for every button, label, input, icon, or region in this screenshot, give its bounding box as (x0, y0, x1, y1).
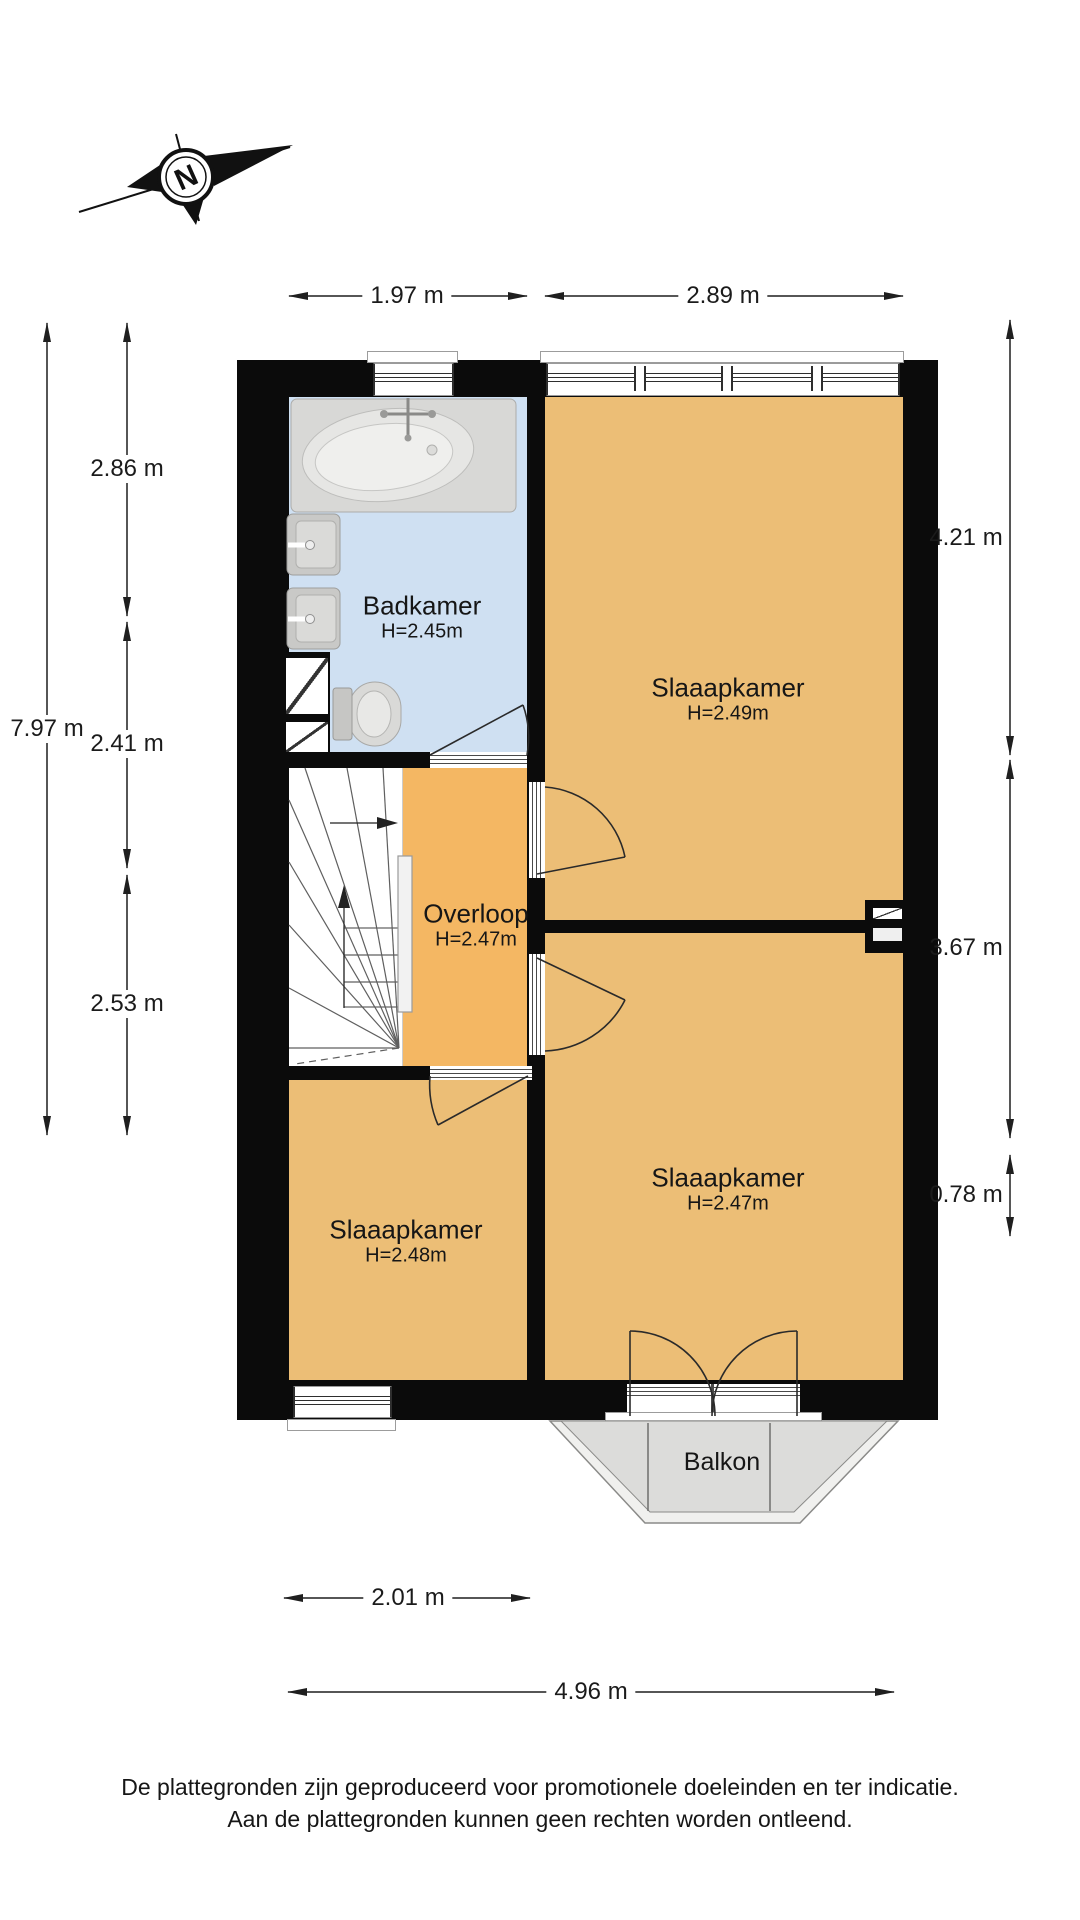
bedroom-top-floor (545, 397, 903, 920)
room-height: H=2.47m (423, 928, 529, 950)
wall-right (903, 360, 938, 1420)
dim-left-2: 2.41 m (82, 730, 171, 758)
room-label-slaapkamer-rechts: Slaaapkamer H=2.47m (651, 1163, 804, 1215)
bedroom-left-door-frame (430, 1066, 532, 1080)
window-sill (367, 351, 458, 363)
room-height: H=2.45m (363, 620, 482, 642)
compass-n-label: N (170, 158, 203, 197)
bedroom-left-window (293, 1386, 392, 1418)
balcony-threshold (605, 1412, 822, 1423)
dim-bottom-2: 4.96 m (546, 1678, 635, 1706)
room-label-overloop: Overloop H=2.47m (423, 899, 529, 951)
bathroom-window (373, 363, 454, 396)
window-sill (540, 351, 904, 363)
window-mullion (634, 366, 646, 391)
footer-disclaimer-line1: De plattegronden zijn geproduceerd voor … (0, 1774, 1080, 1801)
footer-disclaimer-line2: Aan de plattegronden kunnen geen rechten… (0, 1806, 1080, 1833)
dim-top-right: 2.89 m (678, 282, 767, 310)
room-label-slaapkamer-boven: Slaaapkamer H=2.49m (651, 673, 804, 725)
dim-bottom-1: 2.01 m (363, 1584, 452, 1612)
bedroom-right-door-frame (529, 954, 545, 1055)
window-mullion (811, 366, 823, 391)
wall-left (237, 360, 289, 1420)
room-label-badkamer: Badkamer H=2.45m (363, 591, 482, 643)
wall-bedroom-divider (545, 920, 865, 933)
dim-right-1: 4.21 m (929, 524, 1002, 552)
dim-right-3: 0.78 m (929, 1181, 1002, 1209)
bedroom-right-floor (545, 933, 903, 1380)
duct-niche (873, 928, 902, 941)
bedroom-top-door-frame (529, 782, 545, 878)
floorplan-page: N (0, 0, 1080, 1920)
room-label-slaapkamer-links: Slaaapkamer H=2.48m (329, 1215, 482, 1267)
room-height: H=2.47m (651, 1192, 804, 1214)
duct-niche (873, 908, 902, 919)
stairwell-floor (289, 768, 403, 1066)
compass-north-icon: N (79, 134, 293, 225)
dim-left-3: 2.53 m (82, 990, 171, 1018)
room-name: Slaaapkamer (651, 1163, 804, 1192)
room-name: Badkamer (363, 591, 482, 620)
room-name: Balkon (684, 1448, 760, 1476)
shaft-niche (286, 722, 328, 752)
wall-bathroom-bedroom (527, 360, 545, 755)
window-sill (287, 1419, 396, 1431)
room-name: Slaaapkamer (651, 673, 804, 702)
dim-left-1: 2.86 m (82, 455, 171, 483)
room-label-balkon: Balkon (684, 1448, 760, 1476)
dim-top-left: 1.97 m (362, 282, 451, 310)
dim-right-2: 3.67 m (929, 934, 1002, 962)
wall-landing-bottom (289, 1066, 430, 1080)
room-name: Overloop (423, 899, 529, 928)
bathroom-door-frame (430, 752, 527, 768)
room-height: H=2.48m (329, 1244, 482, 1266)
dim-left-total: 7.97 m (2, 715, 91, 743)
room-height: H=2.49m (651, 702, 804, 724)
window-mullion (721, 366, 733, 391)
balcony-door-divider (711, 1384, 714, 1412)
shaft-niche (286, 658, 328, 714)
room-name: Slaaapkamer (329, 1215, 482, 1244)
